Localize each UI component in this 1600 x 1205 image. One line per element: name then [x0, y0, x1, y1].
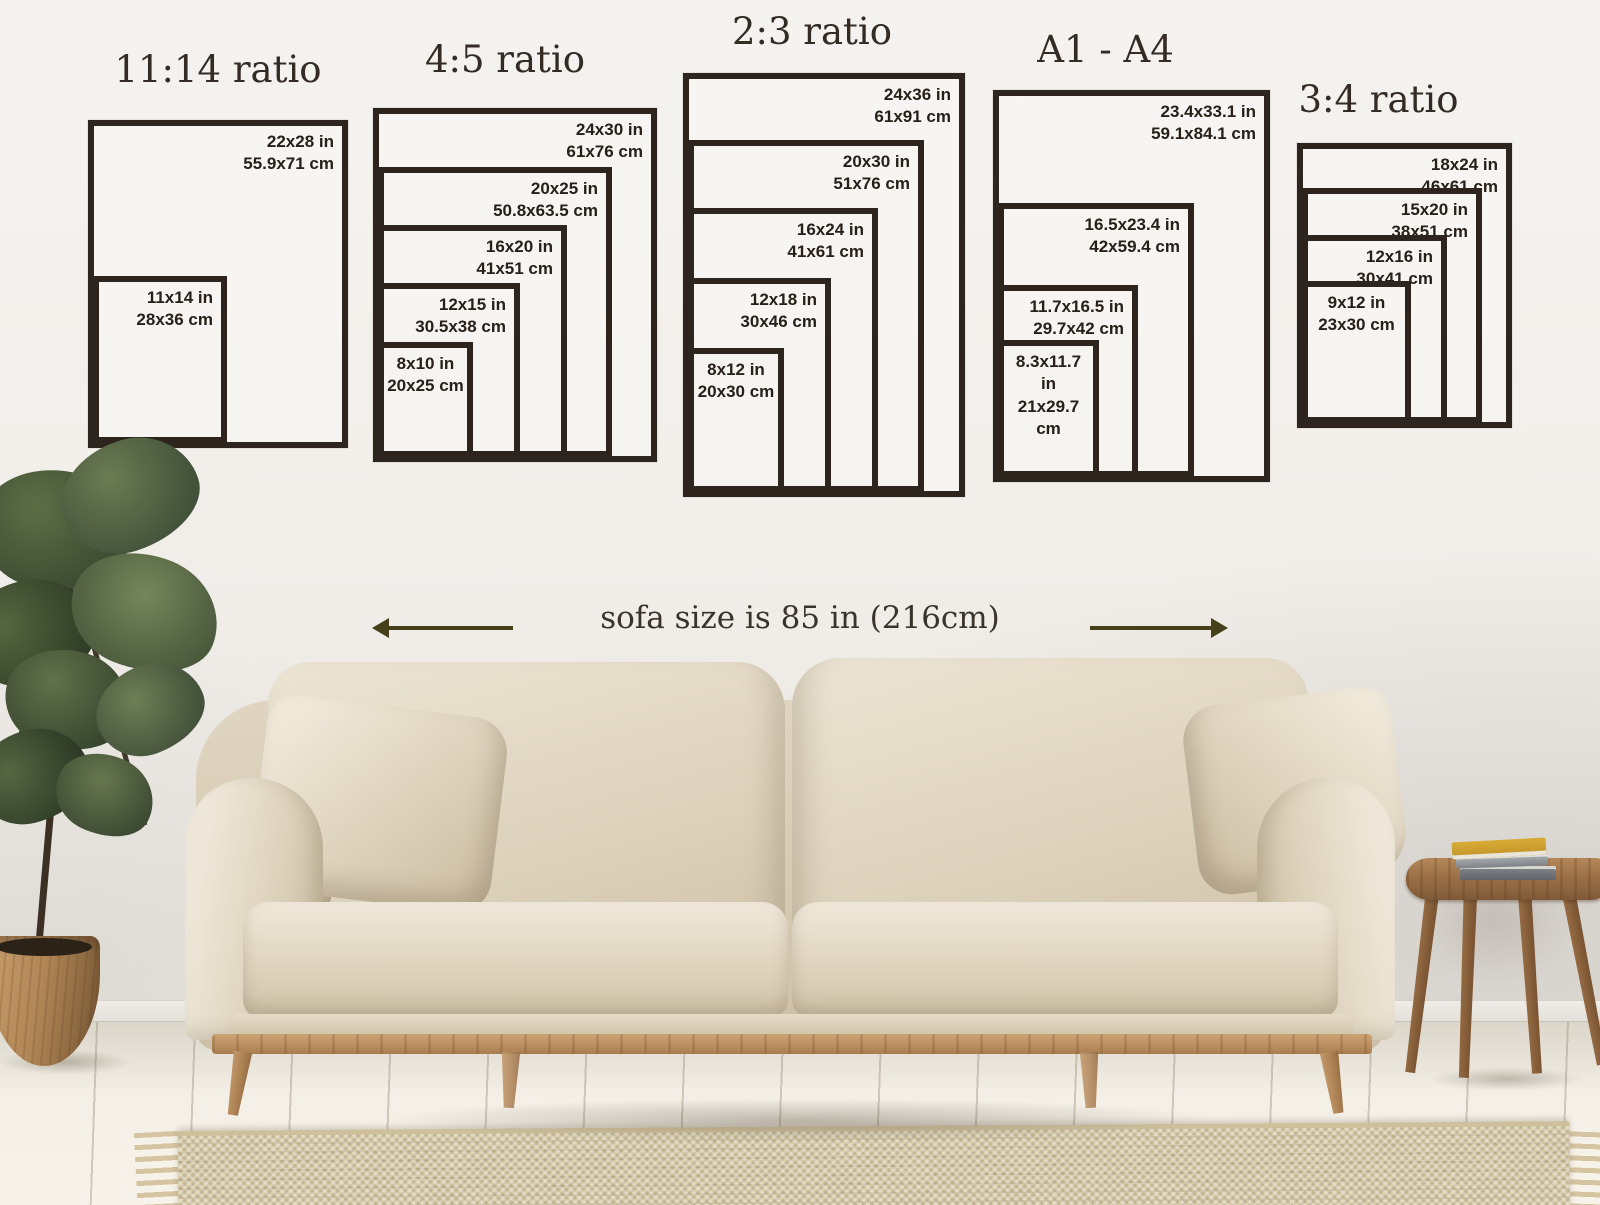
print-frame-8x10: 8x10 in20x25 cm: [378, 342, 473, 457]
size-inches: 8x12 in: [696, 359, 776, 381]
size-centimeters: 41x51 cm: [390, 258, 553, 280]
size-inches: 18x24 in: [1309, 154, 1498, 176]
size-inches: 20x25 in: [390, 178, 598, 200]
size-centimeters: 42x59.4 cm: [1010, 236, 1180, 258]
frame-group-title-ratio-2-3: 2:3 ratio: [732, 12, 892, 53]
frame-group-title-ratio-4-5: 4:5 ratio: [425, 40, 585, 81]
size-centimeters: 21x29.7 cm: [1006, 396, 1091, 441]
sofa-seat-cushion-left: [243, 902, 788, 1018]
frame-size-label: 16x24 in41x61 cm: [700, 219, 864, 264]
frame-size-label: 12x15 in30.5x38 cm: [390, 294, 506, 339]
sofa-width-arrow-right: [1090, 626, 1212, 630]
print-frame-8x12: 8x12 in20x30 cm: [688, 348, 784, 492]
print-frame-9x12: 9x12 in23x30 cm: [1302, 281, 1411, 423]
size-inches: 12x18 in: [700, 289, 817, 311]
sofa-seat-cushion-right: [792, 902, 1338, 1018]
sofa-width-arrow-left: [388, 626, 513, 630]
book-gray-bottom: [1460, 866, 1556, 880]
size-centimeters: 61x91 cm: [695, 106, 951, 128]
size-centimeters: 59.1x84.1 cm: [1005, 123, 1256, 145]
frame-size-label: 8x10 in20x25 cm: [386, 353, 465, 398]
frame-size-label: 20x25 in50.8x63.5 cm: [390, 178, 598, 223]
size-inches: 24x30 in: [385, 119, 643, 141]
size-inches: 12x16 in: [1314, 246, 1433, 268]
size-inches: 11.7x16.5 in: [1010, 296, 1124, 318]
frame-size-label: 23.4x33.1 in59.1x84.1 cm: [1005, 101, 1256, 146]
size-inches: 23.4x33.1 in: [1005, 101, 1256, 123]
size-centimeters: 61x76 cm: [385, 141, 643, 163]
frame-size-label: 24x36 in61x91 cm: [695, 84, 951, 129]
sofa-size-caption: sofa size is 85 in (216cm): [540, 600, 1060, 636]
frame-group-title-a-series: A1 - A4: [1037, 30, 1174, 71]
frame-group-ratio-3-4: 18x24 in46x61 cm15x20 in38x51 cm12x16 in…: [1297, 143, 1512, 428]
size-inches: 16.5x23.4 in: [1010, 214, 1180, 236]
frame-size-label: 24x30 in61x76 cm: [385, 119, 643, 164]
side-table-floor-shadow: [1396, 1062, 1600, 1096]
frame-size-label: 8.3x11.7 in21x29.7 cm: [1006, 351, 1091, 441]
size-centimeters: 55.9x71 cm: [100, 153, 334, 175]
frame-group-a-series: 23.4x33.1 in59.1x84.1 cm16.5x23.4 in42x5…: [993, 90, 1270, 482]
size-centimeters: 20x30 cm: [696, 381, 776, 403]
sofa-floor-shadow: [220, 1090, 1380, 1150]
size-inches: 24x36 in: [695, 84, 951, 106]
size-inches: 16x20 in: [390, 236, 553, 258]
rug-fringe-left: [134, 1131, 182, 1205]
size-inches: 8.3x11.7 in: [1006, 351, 1091, 396]
size-centimeters: 20x25 cm: [386, 375, 465, 397]
frame-group-title-ratio-11-14: 11:14 ratio: [114, 50, 321, 91]
frame-size-label: 22x28 in55.9x71 cm: [100, 131, 334, 176]
frame-size-label: 9x12 in23x30 cm: [1310, 292, 1403, 337]
frame-size-label: 12x18 in30x46 cm: [700, 289, 817, 334]
sofa-wood-rail: [212, 1034, 1372, 1054]
size-centimeters: 23x30 cm: [1310, 314, 1403, 336]
size-centimeters: 28x36 cm: [105, 309, 213, 331]
size-centimeters: 41x61 cm: [700, 241, 864, 263]
size-inches: 16x24 in: [700, 219, 864, 241]
size-centimeters: 51x76 cm: [700, 173, 910, 195]
frame-size-label: 8x12 in20x30 cm: [696, 359, 776, 404]
frame-size-label: 11.7x16.5 in29.7x42 cm: [1010, 296, 1124, 341]
frame-group-ratio-2-3: 24x36 in61x91 cm20x30 in51x76 cm16x24 in…: [683, 73, 965, 497]
living-room-scene: 11:14 ratio22x28 in55.9x71 cm11x14 in28x…: [0, 0, 1600, 1205]
frame-size-label: 16.5x23.4 in42x59.4 cm: [1010, 214, 1180, 259]
size-inches: 22x28 in: [100, 131, 334, 153]
size-centimeters: 29.7x42 cm: [1010, 318, 1124, 340]
size-inches: 11x14 in: [105, 287, 213, 309]
frame-size-label: 11x14 in28x36 cm: [105, 287, 213, 332]
size-centimeters: 50.8x63.5 cm: [390, 200, 598, 222]
size-centimeters: 30x46 cm: [700, 311, 817, 333]
size-centimeters: 30.5x38 cm: [390, 316, 506, 338]
plant-pot-soil: [0, 938, 92, 956]
print-frame-11x14: 11x14 in28x36 cm: [93, 276, 227, 443]
frame-size-label: 20x30 in51x76 cm: [700, 151, 910, 196]
frame-size-label: 16x20 in41x51 cm: [390, 236, 553, 281]
frame-group-ratio-4-5: 24x30 in61x76 cm20x25 in50.8x63.5 cm16x2…: [373, 108, 657, 462]
frame-group-ratio-11-14: 22x28 in55.9x71 cm11x14 in28x36 cm: [88, 120, 348, 448]
frame-group-title-ratio-3-4: 3:4 ratio: [1298, 80, 1458, 121]
size-inches: 9x12 in: [1310, 292, 1403, 314]
size-inches: 12x15 in: [390, 294, 506, 316]
size-inches: 8x10 in: [386, 353, 465, 375]
size-inches: 20x30 in: [700, 151, 910, 173]
print-frame-8.3x11.7: 8.3x11.7 in21x29.7 cm: [998, 340, 1099, 477]
size-inches: 15x20 in: [1314, 199, 1468, 221]
